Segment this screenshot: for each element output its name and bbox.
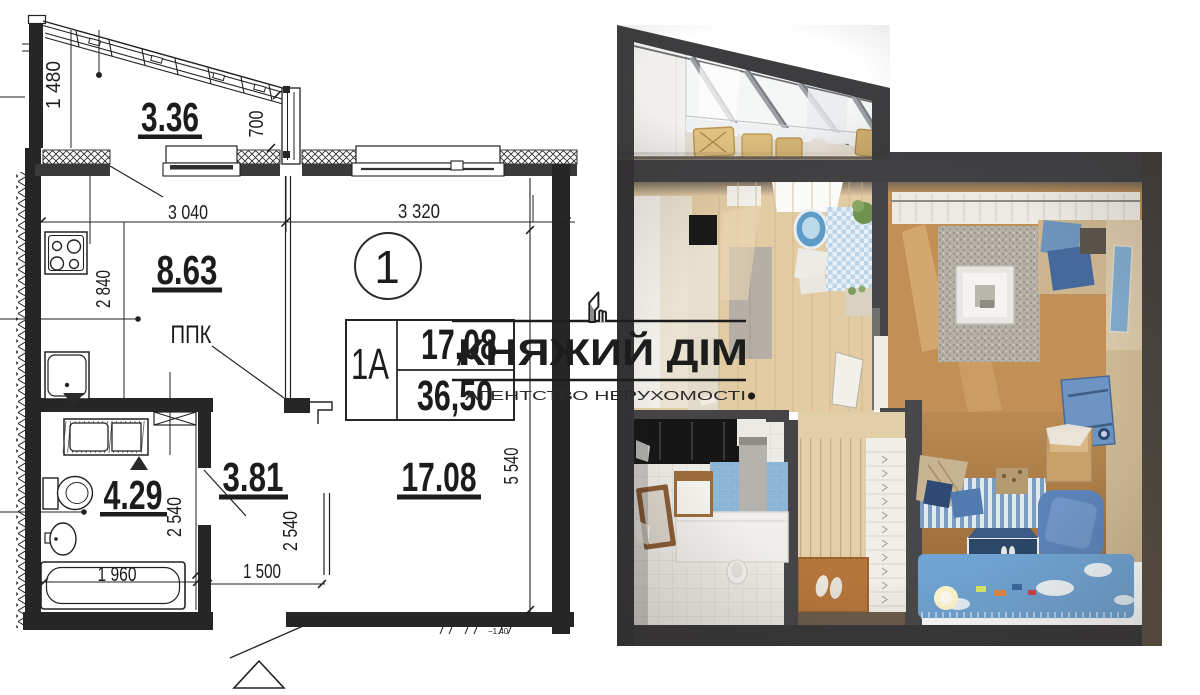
svg-text:КНЯЖИЙ ДІМ: КНЯЖИЙ ДІМ — [458, 331, 748, 373]
svg-text:3.81: 3.81 — [223, 454, 284, 500]
svg-text:4.29: 4.29 — [104, 472, 163, 518]
svg-text:700: 700 — [246, 111, 268, 138]
svg-text:17.08: 17.08 — [402, 454, 477, 500]
svg-text:1 500: 1 500 — [243, 561, 281, 583]
svg-text:2 540: 2 540 — [164, 497, 186, 537]
svg-text:1: 1 — [374, 241, 400, 293]
svg-text:−1.40: −1.40 — [488, 627, 509, 636]
svg-text:3 040: 3 040 — [168, 202, 208, 224]
svg-text:2 540: 2 540 — [280, 511, 302, 551]
svg-text:5 540: 5 540 — [501, 448, 523, 485]
svg-text:3.36: 3.36 — [141, 94, 199, 140]
svg-text:1 960: 1 960 — [98, 564, 137, 586]
svg-text:1А: 1А — [351, 340, 389, 389]
svg-text:ППК: ППК — [171, 321, 212, 349]
svg-text:АГЕНТСТВО НЕРУХОМОСТІ: АГЕНТСТВО НЕРУХОМОСТІ — [465, 389, 746, 403]
svg-text:3 320: 3 320 — [398, 201, 440, 223]
svg-text:2 840: 2 840 — [93, 270, 115, 308]
svg-text:1 480: 1 480 — [43, 61, 65, 109]
svg-text:8.63: 8.63 — [157, 247, 218, 293]
